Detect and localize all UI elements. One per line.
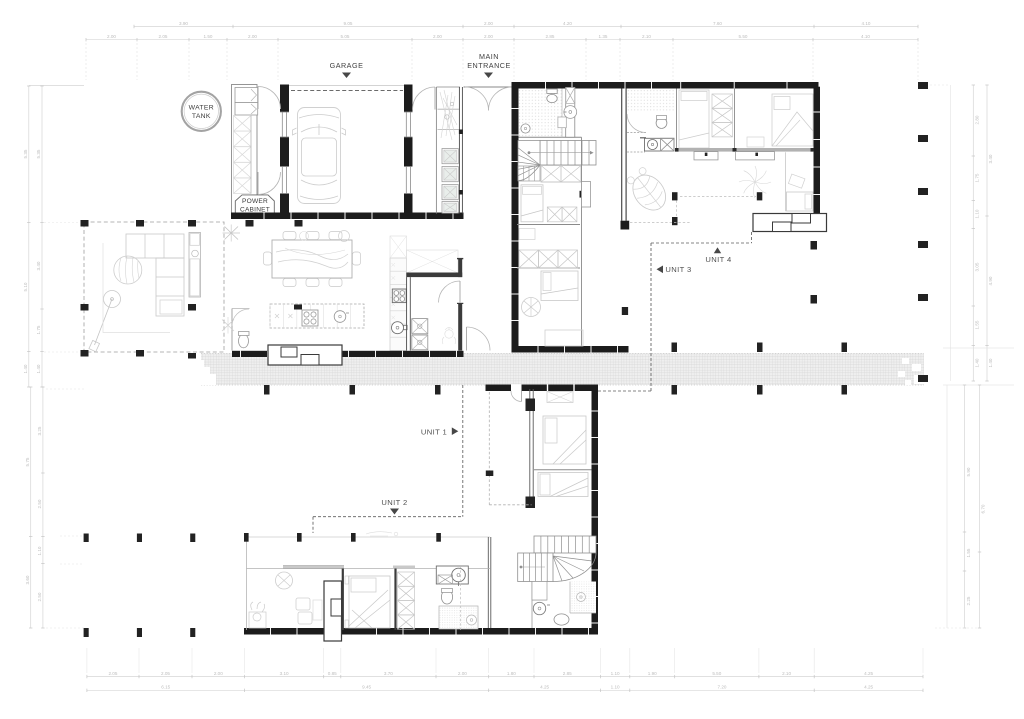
svg-text:5.05: 5.05	[341, 34, 350, 39]
svg-text:1.10: 1.10	[37, 546, 42, 555]
svg-text:4.10: 4.10	[861, 34, 870, 39]
svg-text:1.75: 1.75	[975, 173, 980, 182]
svg-text:6.70: 6.70	[981, 504, 986, 513]
svg-text:2.85: 2.85	[563, 671, 572, 676]
svg-text:2.80: 2.80	[975, 115, 980, 124]
svg-text:5.50: 5.50	[739, 34, 748, 39]
svg-text:2.00: 2.00	[214, 671, 223, 676]
svg-text:2.00: 2.00	[433, 34, 442, 39]
svg-text:1.90: 1.90	[648, 671, 657, 676]
svg-text:1.80: 1.80	[507, 671, 516, 676]
svg-text:9.05: 9.05	[344, 21, 353, 26]
svg-text:0.85: 0.85	[328, 671, 337, 676]
svg-text:1.55: 1.55	[966, 548, 971, 557]
svg-text:1.10: 1.10	[611, 671, 620, 676]
svg-text:1.50: 1.50	[204, 34, 213, 39]
svg-text:3.40: 3.40	[36, 261, 41, 270]
svg-text:2.00: 2.00	[484, 34, 493, 39]
svg-text:1.40: 1.40	[36, 364, 41, 373]
svg-text:1.40: 1.40	[23, 364, 28, 373]
svg-text:4.90: 4.90	[988, 276, 993, 285]
svg-text:3.70: 3.70	[384, 671, 393, 676]
svg-text:1.75: 1.75	[36, 325, 41, 334]
svg-text:1.10: 1.10	[975, 209, 980, 218]
svg-text:4.25: 4.25	[540, 685, 549, 690]
svg-text:2.85: 2.85	[546, 34, 555, 39]
svg-text:3.90: 3.90	[179, 21, 188, 26]
svg-text:2.00: 2.00	[484, 21, 493, 26]
svg-text:UNIT 1: UNIT 1	[421, 428, 447, 437]
svg-text:CABINET: CABINET	[240, 206, 270, 213]
svg-text:1.10: 1.10	[611, 685, 620, 690]
svg-text:1.35: 1.35	[599, 34, 608, 39]
svg-text:2.00: 2.00	[248, 34, 257, 39]
svg-text:1.55: 1.55	[975, 320, 980, 329]
svg-text:WATER: WATER	[189, 105, 214, 112]
svg-text:4.25: 4.25	[864, 685, 873, 690]
svg-text:1.40: 1.40	[975, 358, 980, 367]
svg-text:UNIT 4: UNIT 4	[705, 255, 731, 264]
svg-text:3.10: 3.10	[280, 671, 289, 676]
svg-text:GARAGE: GARAGE	[330, 61, 364, 70]
svg-text:POWER: POWER	[242, 198, 268, 205]
svg-text:5.35: 5.35	[23, 149, 28, 158]
svg-text:5.10: 5.10	[23, 282, 28, 291]
svg-text:5.90: 5.90	[966, 467, 971, 476]
svg-text:3.05: 3.05	[975, 262, 980, 271]
svg-text:2.00: 2.00	[458, 671, 467, 676]
svg-text:4.20: 4.20	[563, 21, 572, 26]
svg-text:2.50: 2.50	[37, 592, 42, 601]
svg-text:2.05: 2.05	[108, 671, 117, 676]
svg-text:TANK: TANK	[192, 113, 211, 120]
svg-text:9.45: 9.45	[362, 685, 371, 690]
svg-text:2.25: 2.25	[966, 596, 971, 605]
svg-text:2.05: 2.05	[161, 671, 170, 676]
svg-text:2.00: 2.00	[107, 34, 116, 39]
svg-text:2.10: 2.10	[782, 671, 791, 676]
svg-text:2.10: 2.10	[642, 34, 651, 39]
svg-text:4.25: 4.25	[864, 671, 873, 676]
svg-text:5.75: 5.75	[25, 457, 30, 466]
svg-text:5.35: 5.35	[36, 149, 41, 158]
svg-text:1.40: 1.40	[988, 358, 993, 367]
svg-text:5.50: 5.50	[712, 671, 721, 676]
svg-text:2.50: 2.50	[37, 499, 42, 508]
svg-text:ENTRANCE: ENTRANCE	[467, 61, 511, 70]
svg-text:MAIN: MAIN	[479, 52, 499, 61]
svg-text:3.25: 3.25	[37, 426, 42, 435]
svg-text:UNIT 2: UNIT 2	[381, 498, 407, 507]
svg-text:7.60: 7.60	[713, 21, 722, 26]
svg-text:6.15: 6.15	[161, 685, 170, 690]
svg-text:2.05: 2.05	[159, 34, 168, 39]
svg-text:3.60: 3.60	[25, 575, 30, 584]
svg-text:4.10: 4.10	[862, 21, 871, 26]
svg-text:3.40: 3.40	[988, 154, 993, 163]
svg-text:UNIT 3: UNIT 3	[665, 265, 691, 274]
svg-text:7.20: 7.20	[718, 685, 727, 690]
